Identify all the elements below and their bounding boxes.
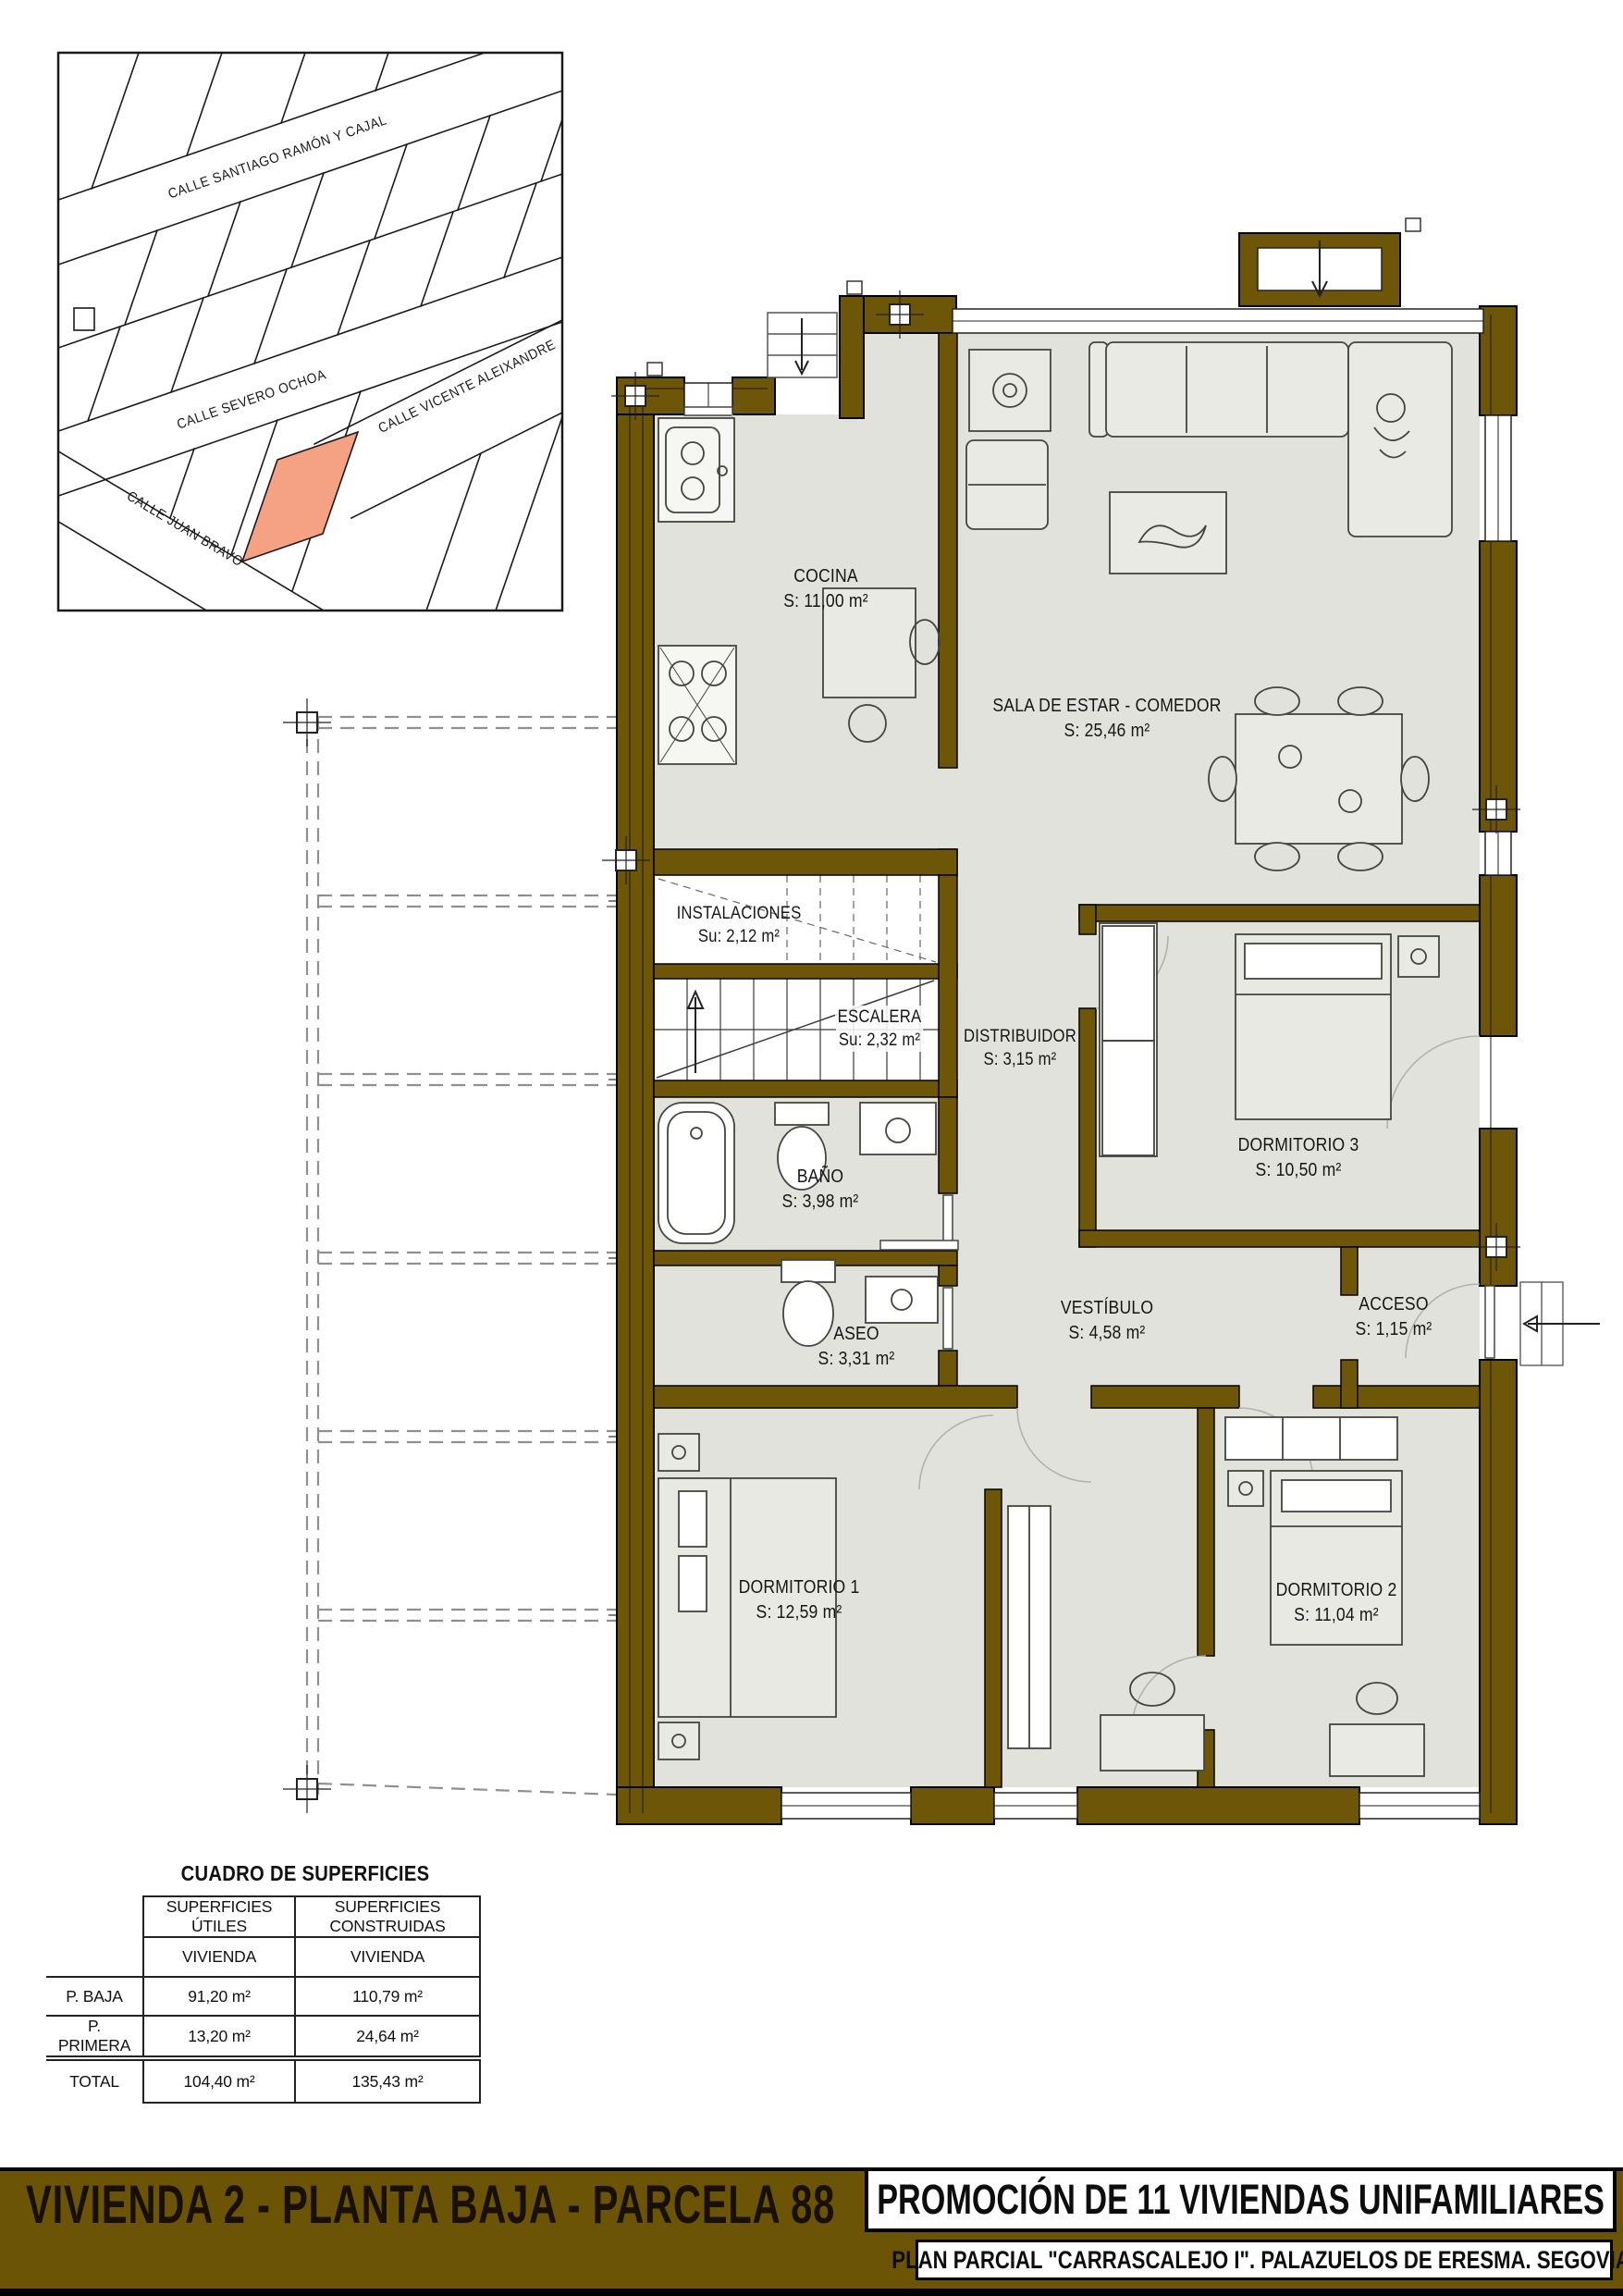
wardrobe-dorm3 <box>1100 923 1157 1156</box>
table-row: SUPERFICIES ÚTILES SUPERFICIES CONSTRUID… <box>46 1896 480 1937</box>
cell-primera-construida: 24,64 m² <box>295 2016 480 2058</box>
room-label-dormitorio-2: DORMITORIO 2S: 11,04 m² <box>1276 1578 1397 1628</box>
coffee-table <box>1110 492 1226 574</box>
col-header-utiles: SUPERFICIES ÚTILES <box>143 1896 295 1937</box>
room-label-dormitorio-1: DORMITORIO 1S: 12,59 m² <box>739 1575 860 1625</box>
sink-bano <box>860 1103 936 1154</box>
cell-baja-construida: 110,79 m² <box>295 1977 480 2016</box>
sheet-title: VIVIENDA 2 - PLANTA BAJA - PARCELA 88 <box>26 2176 835 2235</box>
room-label-sala-de-estar: SALA DE ESTAR - COMEDORS: 25,46 m² <box>992 694 1221 744</box>
bathtub <box>658 1103 734 1243</box>
wardrobe-hall <box>1008 1506 1051 1748</box>
room-label-distribuidor: DISTRIBUIDORS: 3,15 m² <box>964 1025 1076 1071</box>
sub-header-vivienda-1: VIVIENDA <box>143 1937 295 1977</box>
promotion-title: PROMOCIÓN DE 11 VIVIENDAS UNIFAMILIARES <box>877 2176 1605 2224</box>
room-label-escalera: ESCALERA Su: 2,32 m² <box>835 1006 924 1052</box>
row-label-total: TOTAL <box>46 2058 143 2103</box>
room-label-aseo: ASEOS: 3,31 m² <box>818 1322 895 1372</box>
table-row: VIVIENDA VIVIENDA <box>46 1937 480 1977</box>
cell-total-util: 104,40 m² <box>143 2058 295 2103</box>
cell-primera-util: 13,20 m² <box>143 2016 295 2058</box>
pergola-grid <box>307 717 617 1795</box>
bottom-rule <box>0 2289 1623 2296</box>
promotion-title-box: PROMOCIÓN DE 11 VIVIENDAS UNIFAMILIARES <box>865 2167 1617 2232</box>
table-row: P. BAJA 91,20 m² 110,79 m² <box>46 1977 480 2016</box>
wardrobe-dorm2 <box>1225 1417 1397 1460</box>
room-label-acceso: ACCESOS: 1,15 m² <box>1356 1292 1432 1342</box>
row-label-p-primera: P. PRIMERA <box>46 2016 143 2058</box>
room-label-dormitorio-3: DORMITORIO 3S: 10,50 m² <box>1238 1133 1359 1183</box>
site-map <box>37 16 592 625</box>
architectural-plan-sheet: { "site_map": { "streets": [ {"label": "… <box>0 0 1623 2296</box>
col-header-construidas: SUPERFICIES CONSTRUIDAS <box>295 1896 480 1937</box>
table-row: P. PRIMERA 13,20 m² 24,64 m² <box>46 2016 480 2058</box>
entry-steps-right <box>1520 1282 1600 1365</box>
dining-table <box>1209 687 1429 870</box>
room-label-vestibulo: VESTÍBULOS: 4,58 m² <box>1061 1296 1153 1346</box>
tv-unit <box>969 350 1051 431</box>
plan-parcial-subtitle: PLAN PARCIAL "CARRASCALEJO I". PALAZUELO… <box>892 2246 1623 2275</box>
sink-aseo <box>866 1277 938 1323</box>
entry-steps-top <box>768 313 837 377</box>
cell-baja-util: 91,20 m² <box>143 1977 295 2016</box>
cell-total-construida: 135,43 m² <box>295 2058 480 2103</box>
room-label-bano: BAÑOS: 3,98 m² <box>782 1165 859 1215</box>
kitchen-sink-unit <box>658 418 734 522</box>
row-label-p-baja: P. BAJA <box>46 1977 143 2016</box>
room-label-instalaciones: INSTALACIONESSu: 2,12 m² <box>677 902 802 948</box>
sub-header-vivienda-2: VIVIENDA <box>295 1937 480 1977</box>
surface-table-title: CUADRO DE SUPERFICIES <box>159 1861 452 1886</box>
room-label-cocina: COCINAS: 11,00 m² <box>783 564 868 614</box>
plan-parcial-box: PLAN PARCIAL "CARRASCALEJO I". PALAZUELO… <box>916 2240 1613 2280</box>
armchair <box>966 440 1048 529</box>
surface-table: SUPERFICIES ÚTILES SUPERFICIES CONSTRUID… <box>46 1895 481 2104</box>
kitchen-stove <box>658 646 736 764</box>
table-row-total: TOTAL 104,40 m² 135,43 m² <box>46 2058 480 2103</box>
